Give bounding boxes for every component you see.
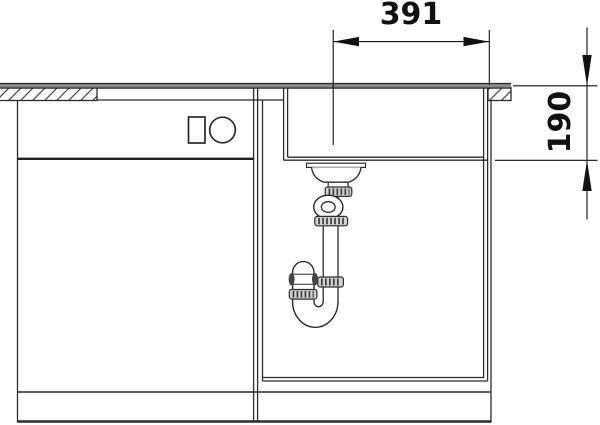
dimension-width-label: 391 (347, 0, 475, 32)
sink-section-drawing (0, 0, 600, 425)
control-rectangle (189, 117, 206, 143)
arrowhead-left (333, 37, 359, 46)
dimension-depth-label: 190 (545, 90, 577, 154)
pipe-nut (318, 277, 344, 287)
trap-collar-lug (312, 273, 318, 285)
overflow-ring-inner (321, 202, 335, 213)
sink-rim (0, 84, 511, 89)
pipe-nut (315, 216, 348, 225)
technical-drawing-canvas: 391 190 (0, 0, 600, 425)
basket-strainer-flange (307, 163, 366, 167)
countertop-right-section (488, 88, 511, 101)
basket-strainer-cup (312, 167, 362, 182)
arrowhead-bottom (582, 160, 591, 191)
control-knob (210, 117, 236, 143)
trap-collar-lug (289, 273, 295, 285)
sink-base-interior (263, 88, 488, 381)
arrowhead-right (464, 37, 490, 46)
sink-bowl (284, 88, 488, 160)
base-cabinet (0, 88, 491, 423)
drain-assembly (289, 163, 366, 327)
arrowhead-top (582, 55, 591, 86)
trap-inner-bend (314, 302, 323, 307)
countertop-left-section (0, 88, 97, 101)
pipe-nut (289, 290, 317, 300)
drain-controls (189, 117, 236, 143)
